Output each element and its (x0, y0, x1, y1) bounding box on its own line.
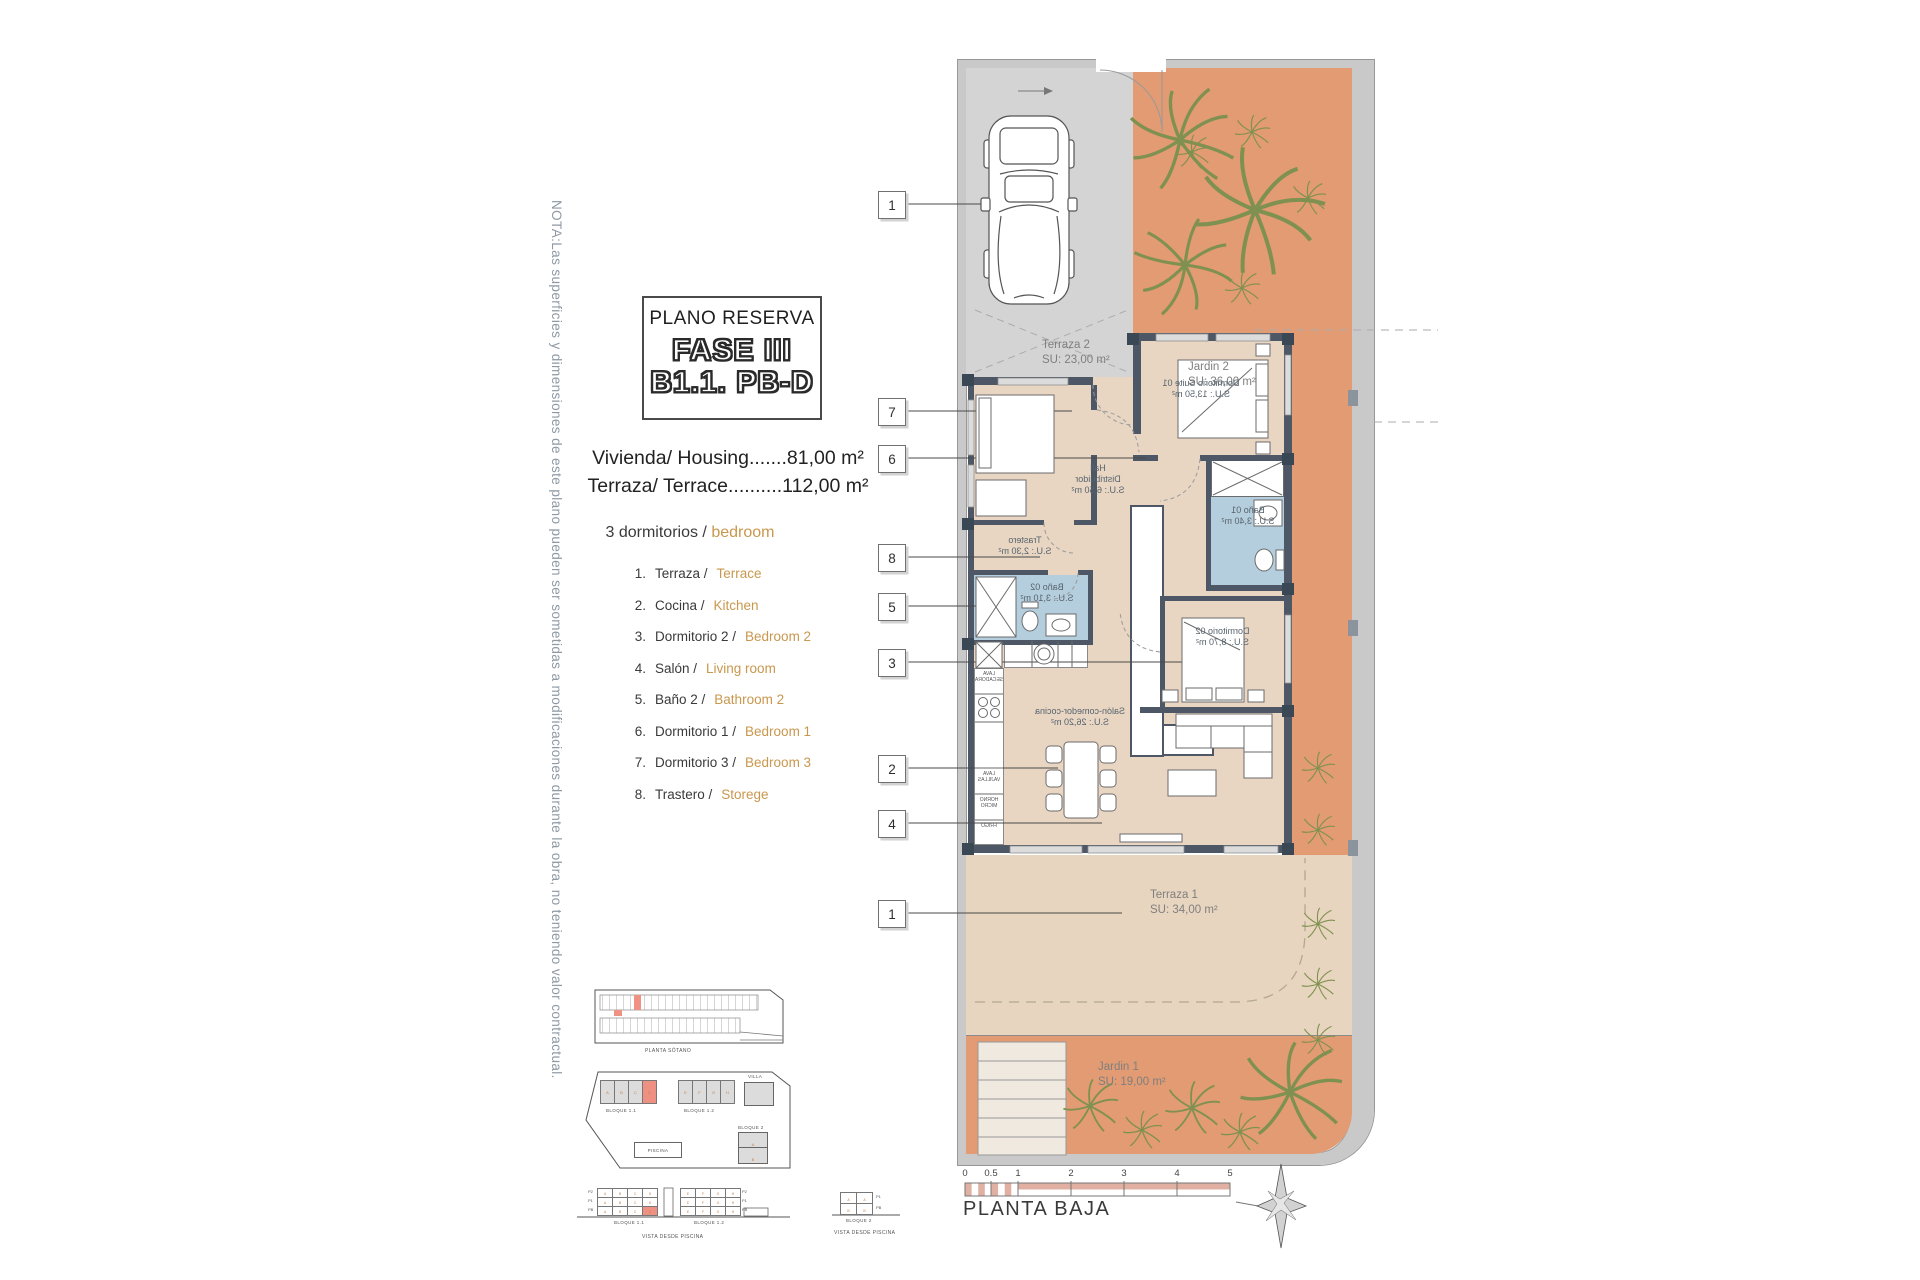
callout-cocina: 2 (878, 755, 906, 783)
title-block: PLANO RESERVA FASE III B1.1. PB-D (642, 296, 822, 420)
floor-label-pb: PB (588, 1207, 593, 1212)
callout-dormitorio-1: 6 (878, 445, 906, 473)
elevation-bloque-12: EFGH EFGH EFGH (680, 1188, 741, 1216)
scale-tick: 5 (1218, 1168, 1242, 1179)
garden-1-floor (966, 1035, 1352, 1154)
fridge-label: FRIGO (974, 824, 1004, 830)
piscina-shape: PISCINA (634, 1142, 682, 1158)
housing-area: Vivienda/ Housing.......81,00 m² (583, 444, 873, 472)
view-from-pool-label: VISTA DESDE PISCINA (642, 1234, 703, 1240)
compass-rose (1236, 1164, 1306, 1248)
hall-label: HallDistribuidorS.U.: 6,50 m² (1058, 463, 1138, 495)
floor-label-p1: P1 (588, 1198, 593, 1203)
highlighted-unit-d: D (643, 1081, 656, 1103)
callout-salon: 4 (878, 810, 906, 838)
scale-tick: 4 (1165, 1168, 1189, 1179)
legend-item: 2.Cocina /Kitchen (628, 598, 811, 613)
legend-item: 5.Baño 2 /Bathroom 2 (628, 692, 811, 707)
terrace-1-label: Terraza 1SU: 34,00 m² (1150, 888, 1218, 918)
trastero-label: TrasteroS.U.: 2,30 m² (988, 535, 1062, 557)
villa-shape (744, 1082, 774, 1106)
bedrooms-line: 3 dormitorios / bedroom (553, 524, 827, 542)
floor-label-p2: P2 (588, 1189, 593, 1194)
elevation-bloque-11: ABCD ABCD ABCD (597, 1188, 658, 1216)
unit-title: B1.1. PB-D (644, 367, 820, 399)
bloque-12-units: E F G H (678, 1080, 735, 1104)
terrace-2-label: Terraza 2SU: 23,00 m² (1042, 338, 1110, 368)
scale-tick: 0.5 (979, 1168, 1003, 1179)
legend-item: 8.Trastero /Storege (628, 787, 811, 802)
kitchen-column (974, 668, 1004, 845)
washer-label: LAVA SECADORA (974, 672, 1004, 684)
floor-label-p2: P2 (742, 1189, 747, 1194)
contract-note: NOTA:Las superficies y dimensiones de es… (549, 200, 564, 1100)
floor-label-pb: PB (742, 1207, 747, 1212)
scale-tick: 2 (1059, 1168, 1083, 1179)
dormitorio-02-label: Dormitorio 02S.U.: 8,70 m² (1170, 626, 1275, 648)
terrace-area: Terraza/ Terrace..........112,00 m² (583, 472, 873, 500)
salon-label: Salón-comedor-cocinaS.U.: 26,20 m² (1022, 706, 1138, 728)
room-legend: 1.Terraza /Terrace 2.Cocina /Kitchen 3.D… (628, 566, 811, 818)
scale-bar (965, 1181, 1230, 1196)
legend-item: 4.Salón /Living room (628, 661, 811, 676)
callout-terraza-1: 1 (878, 900, 906, 928)
legend-item: 7.Dormitorio 3 /Bedroom 3 (628, 755, 811, 770)
sheet-title: PLANTA BAJA (963, 1198, 1110, 1221)
bloque-2-shape: A B (738, 1132, 768, 1164)
legend-item: 3.Dormitorio 2 /Bedroom 2 (628, 629, 811, 644)
elevation-bloque-2: AA BB (840, 1192, 873, 1215)
villa-label: VILLA (748, 1074, 762, 1079)
bano-02-label: Baño 02S.U.: 3,10 m² (1014, 582, 1080, 604)
scale-tick: 3 (1112, 1168, 1136, 1179)
suite-01-label: Dormitorio Suite 01S.U.: 13,50 m² (1146, 378, 1256, 400)
bloque-11-units: A B C D (600, 1080, 657, 1104)
garden-1-label: Jardin 1SU: 19,00 m² (1098, 1060, 1166, 1090)
bloque-2-label: BLOQUE 2 (738, 1125, 764, 1130)
callout-dormitorio-2: 3 (878, 649, 906, 677)
gate-opening (1096, 58, 1166, 72)
terrace-1-floor (966, 855, 1352, 1035)
highlighted-elevation-unit: D (643, 1207, 657, 1215)
callout-bano-2: 5 (878, 593, 906, 621)
callout-dormitorio-3: 7 (878, 398, 906, 426)
view-from-pool-label-2: VISTA DESDE PISCINA (834, 1230, 895, 1236)
elevation-bloque-2-label: BLOQUE 2 (846, 1218, 872, 1223)
callout-trastero: 8 (878, 544, 906, 572)
basement-label: PLANTA SÓTANO (645, 1048, 691, 1054)
elevation-bloque-11-label: BLOQUE 1.1 (614, 1220, 644, 1225)
scale-tick: 0 (953, 1168, 977, 1179)
shower-closet (1211, 460, 1284, 497)
area-summary: Vivienda/ Housing.......81,00 m² Terraza… (583, 444, 873, 501)
core-void-foot (1162, 724, 1214, 756)
bano-01-label: Baño 01S.U.: 3,40 m² (1212, 505, 1284, 527)
phase-title: FASE III (644, 335, 820, 367)
dishwasher-label: LAVA VAJILLAS (974, 772, 1004, 784)
legend-item: 6.Dormitorio 1 /Bedroom 1 (628, 724, 811, 739)
side-garden-strip (1292, 440, 1352, 855)
parking-terrace-floor (966, 68, 1133, 377)
reservation-plan-sheet: NOTA:Las superficies y dimensiones de es… (0, 0, 1920, 1280)
bloque-12-label: BLOQUE 1.2 (684, 1108, 714, 1113)
legend-item: 1.Terraza /Terrace (628, 566, 811, 581)
callout-terraza: 1 (878, 191, 906, 219)
elevation-bloque-12-label: BLOQUE 1.2 (694, 1220, 724, 1225)
plan-title: PLANO RESERVA (644, 308, 820, 330)
kitchen-counter (1004, 640, 1088, 668)
basement-diagram (595, 990, 783, 1043)
floor-label-p1: P1 (742, 1198, 747, 1203)
bloque-11-label: BLOQUE 1.1 (606, 1108, 636, 1113)
floor-label-p1: P1 (876, 1194, 881, 1199)
scale-tick: 1 (1006, 1168, 1030, 1179)
floor-label-pb: PB (876, 1205, 881, 1210)
oven-label: HORNO MICRO (974, 798, 1004, 810)
